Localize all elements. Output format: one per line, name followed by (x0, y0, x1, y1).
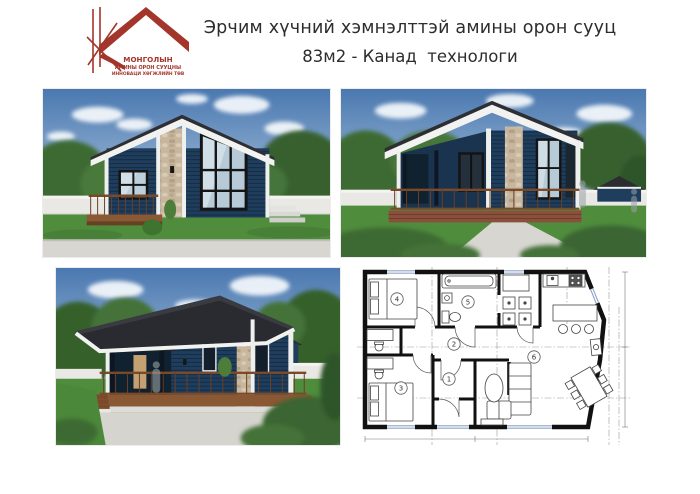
render-side-view-image (340, 88, 647, 258)
floor-plan-image: 1 2 3 4 5 (357, 267, 635, 449)
person-silhouette (152, 361, 160, 392)
room-label-3: 3 (395, 382, 407, 394)
slide-page: МОНГОЛЫН АМИНЫ ОРОН СУУЦНЫ ИННОВАЦИ ХӨГЖ… (0, 0, 700, 494)
bathroom-sink (442, 293, 452, 303)
side-window (458, 152, 484, 192)
front-path (43, 239, 330, 257)
coffee-table (485, 374, 503, 402)
deck-plant (218, 357, 232, 377)
title-line-2: 83м2 - Канад технологи (175, 47, 645, 66)
room-label-4: 4 (391, 293, 403, 305)
room-label-2: 2 (448, 338, 460, 350)
planter-shrub (164, 200, 176, 220)
logo-line2: АМИНЫ ОРОН СУУЦНЫ (115, 65, 181, 71)
slide-title: Эрчим хүчний хэмнэлттэй амины орон сууц … (175, 18, 645, 66)
room-number-4: 4 (395, 295, 400, 303)
shrub (142, 219, 162, 235)
title-line-1: Эрчим хүчний хэмнэлттэй амины орон сууц (175, 18, 645, 38)
room-number-3: 3 (399, 384, 403, 392)
room-label-5: 5 (462, 296, 474, 308)
floor-plan-drawing: 1 2 3 4 5 (357, 267, 635, 449)
kitchen-island (553, 305, 597, 334)
tv-cabinet (481, 419, 503, 425)
wall-lamp-icon (170, 166, 174, 173)
rear-view-scene (56, 268, 340, 445)
room-label-6: 6 (528, 351, 540, 363)
front-view-scene (43, 89, 330, 257)
front-wall (490, 131, 577, 210)
right-wall-vanity (590, 339, 602, 356)
room-number-6: 6 (532, 353, 537, 361)
room-label-1: 1 (443, 373, 455, 385)
logo-text: МОНГОЛЫН АМИНЫ ОРОН СУУЦНЫ ИННОВАЦИ ХӨГЖ… (112, 55, 185, 77)
render-rear-view-image (55, 267, 341, 446)
logo-line1: МОНГОЛЫН (123, 55, 172, 64)
room-number-2: 2 (452, 340, 456, 348)
render-front-view-image (42, 88, 331, 258)
room-number-1: 1 (447, 375, 451, 383)
room-number-5: 5 (466, 298, 470, 306)
side-view-scene (341, 89, 646, 257)
brick-base (389, 211, 582, 223)
bathtub (442, 274, 496, 288)
kitchen-counter (543, 274, 585, 287)
